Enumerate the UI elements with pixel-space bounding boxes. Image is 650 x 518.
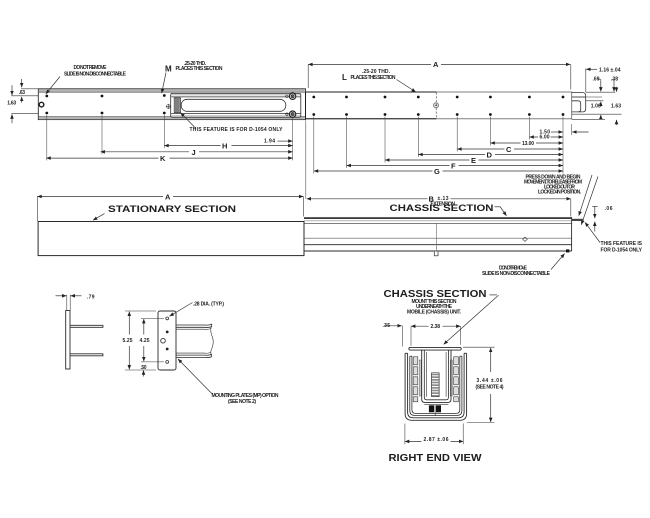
svg-text:.28 DIA. (TYP.): .28 DIA. (TYP.) xyxy=(193,301,224,307)
svg-text:4.25: 4.25 xyxy=(140,338,150,344)
svg-text:MOBILE (CHASSIS) UNIT.: MOBILE (CHASSIS) UNIT. xyxy=(407,309,462,315)
svg-text:DO NOT REMOVE: DO NOT REMOVE xyxy=(74,65,108,71)
svg-text:A: A xyxy=(165,192,171,201)
svg-text:1.00: 1.00 xyxy=(591,104,601,110)
svg-text:PLACES THIS SECTION: PLACES THIS SECTION xyxy=(176,66,223,72)
svg-text:.38: .38 xyxy=(611,76,618,82)
svg-text:LOCKED-IN POSITION.: LOCKED-IN POSITION. xyxy=(538,189,582,195)
svg-text:E: E xyxy=(471,156,476,165)
svg-text:STATIONARY SECTION: STATIONARY SECTION xyxy=(108,204,236,214)
svg-text:FOR D-1054 ONLY: FOR D-1054 ONLY xyxy=(601,247,643,253)
svg-text:1.63: 1.63 xyxy=(7,101,16,107)
svg-text:6.00: 6.00 xyxy=(540,135,550,141)
svg-text:SLIDE IS NON-DISCONNECTABLE: SLIDE IS NON-DISCONNECTABLE xyxy=(64,71,127,77)
svg-text:.69: .69 xyxy=(593,76,600,82)
svg-text:CHASSIS SECTION: CHASSIS SECTION xyxy=(390,203,494,213)
svg-text:.63: .63 xyxy=(19,90,25,96)
svg-text:H: H xyxy=(222,142,227,151)
svg-text:SLIDE IS NON-DISCONNECTABLE: SLIDE IS NON-DISCONNECTABLE xyxy=(482,271,551,277)
svg-text:C: C xyxy=(506,145,512,154)
svg-text:(SEE NOTE 4): (SEE NOTE 4) xyxy=(476,384,504,390)
svg-text:F: F xyxy=(451,162,456,171)
svg-text:RIGHT END VIEW: RIGHT END VIEW xyxy=(389,453,483,464)
svg-text:PLACES THIS SECTION: PLACES THIS SECTION xyxy=(351,75,396,81)
svg-text:1.63: 1.63 xyxy=(611,104,621,110)
svg-text:1.16 ±.04: 1.16 ±.04 xyxy=(599,67,621,73)
svg-text:.06: .06 xyxy=(605,206,613,212)
svg-text:1.94: 1.94 xyxy=(264,138,275,144)
svg-text:A: A xyxy=(433,60,439,69)
svg-text:.79: .79 xyxy=(87,294,95,300)
svg-text:(SEE NOTE 2): (SEE NOTE 2) xyxy=(228,399,256,405)
svg-text:2.38: 2.38 xyxy=(431,324,441,330)
svg-text:M: M xyxy=(165,65,172,74)
svg-text:THIS FEATURE IS: THIS FEATURE IS xyxy=(601,241,643,247)
svg-text:3.44 ±.06: 3.44 ±.06 xyxy=(477,378,503,384)
svg-text:D: D xyxy=(487,151,493,160)
svg-text:.50: .50 xyxy=(141,365,147,371)
svg-text:L: L xyxy=(342,73,347,82)
svg-text:2.87 ±.06: 2.87 ±.06 xyxy=(424,437,449,443)
svg-text:THIS FEATURE IS FOR D-1054 ONL: THIS FEATURE IS FOR D-1054 ONLY xyxy=(190,127,284,133)
svg-text:.35: .35 xyxy=(383,323,391,329)
svg-text:G: G xyxy=(434,167,440,176)
svg-text:5.25: 5.25 xyxy=(123,338,133,344)
svg-text:13.00: 13.00 xyxy=(522,141,534,147)
svg-text:K: K xyxy=(160,154,166,163)
svg-text:J: J xyxy=(192,148,196,157)
